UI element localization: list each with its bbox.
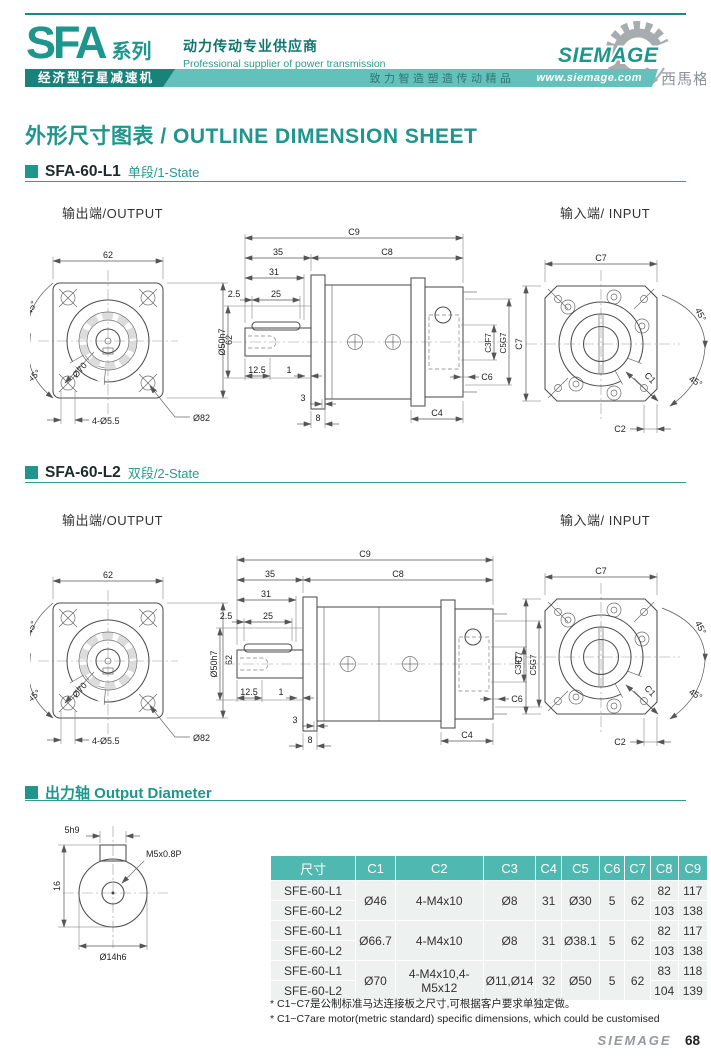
dim-3: 3 xyxy=(292,715,297,725)
cell-model: SFE-60-L2 xyxy=(271,901,356,921)
dim-c9: C9 xyxy=(359,549,371,559)
s2-input-flange-drawing: C7 C7 45° 45° C1 C2 xyxy=(500,545,711,780)
cell-model: SFE-60-L2 xyxy=(271,941,356,961)
col-c6: C6 xyxy=(599,856,624,881)
slogan-cn: 动力传动专业供应商 xyxy=(183,36,386,56)
section-bullet xyxy=(25,165,38,178)
cell-c8: 82 xyxy=(650,921,678,941)
cell-c5: Ø50 xyxy=(561,961,599,1001)
cell-c9: 117 xyxy=(678,921,708,941)
section-2-stage: 双段/2-State xyxy=(128,463,200,482)
dim-3: 3 xyxy=(300,393,305,403)
series-suffix: 系列 xyxy=(112,35,152,64)
dim-2-5: 2.5 xyxy=(220,611,233,621)
table-notes: * C1~C7是公制标准马达连接板之尺寸,可根据客户要求单独定做。 * C1~C… xyxy=(270,997,660,1027)
cell-c6: 5 xyxy=(599,961,624,1001)
col-c1: C1 xyxy=(356,856,396,881)
dim-angle: 45° xyxy=(693,306,708,323)
cell-c9: 138 xyxy=(678,901,708,921)
dim-35: 35 xyxy=(273,247,283,257)
top-rule xyxy=(25,13,686,15)
datasheet-page: SFA 系列 动力传动专业供应商 Professional supplier o… xyxy=(0,0,711,1060)
dim-1: 1 xyxy=(286,365,291,375)
banner-product: 经济型行星减速机 xyxy=(25,69,175,87)
dim-c4: C4 xyxy=(431,408,443,418)
dim-c1: C1 xyxy=(643,370,658,385)
cell-c2: 4-M4x10 xyxy=(395,881,483,921)
flange-geometry xyxy=(526,583,680,735)
dim-c6: C6 xyxy=(481,372,493,382)
section-2-rule xyxy=(25,482,686,483)
table-row: SFE-60-L1 Ø66.7 4-M4x10 Ø8 31 Ø38.1 5 62… xyxy=(271,921,708,941)
dim-c7: C7 xyxy=(595,566,607,576)
dim-key: 5h9 xyxy=(64,825,79,835)
cell-c9: 139 xyxy=(678,981,708,1001)
section-bullet xyxy=(25,466,38,479)
section-bullet xyxy=(25,786,38,799)
cell-c2: 4-M4x10 xyxy=(395,921,483,961)
flange-geometry xyxy=(38,590,178,736)
cell-model: SFE-60-L1 xyxy=(271,961,356,981)
dimension-table: 尺寸 C1 C2 C3 C4 C5 C6 C7 C8 C9 SFE-60-L1 … xyxy=(270,855,708,1001)
cell-c3: Ø8 xyxy=(483,881,536,921)
cell-c7: 62 xyxy=(625,881,650,921)
dim-31: 31 xyxy=(261,589,271,599)
dim-angle: 45° xyxy=(687,374,704,390)
cell-c1: Ø70 xyxy=(356,961,396,1001)
flange-geometry xyxy=(526,270,680,422)
cell-c1: Ø66.7 xyxy=(356,921,396,961)
cell-c8: 103 xyxy=(650,941,678,961)
dim-d50h7: Ø50h7 xyxy=(217,328,227,355)
table-row: SFE-60-L1 Ø46 4-M4x10 Ø8 31 Ø30 5 62 82 … xyxy=(271,881,708,901)
footer-brand: SIEMAGE xyxy=(598,1033,672,1048)
header-banner: 致力智造塑造传动精品 www.siemage.com 经济型行星减速机 xyxy=(25,69,658,87)
cell-c8: 83 xyxy=(650,961,678,981)
dim-c8: C8 xyxy=(381,247,393,257)
cell-c5: Ø30 xyxy=(561,881,599,921)
col-c8: C8 xyxy=(650,856,678,881)
page-footer: SIEMAGE 68 xyxy=(420,1032,700,1050)
dim-thread: M5x0.8P xyxy=(146,849,182,859)
dim-c1: C1 xyxy=(643,683,658,698)
dim-c4: C4 xyxy=(461,730,473,740)
dim-holes: 4-Ø5.5 xyxy=(92,736,120,746)
dim-25: 25 xyxy=(263,611,273,621)
dim-16: 16 xyxy=(52,881,62,891)
cell-c3: Ø8 xyxy=(483,921,536,961)
logo-wordmark: SIEMAGE xyxy=(558,44,659,67)
cell-c8: 103 xyxy=(650,901,678,921)
col-c3: C3 xyxy=(483,856,536,881)
cell-c5: Ø38.1 xyxy=(561,921,599,961)
section-1-header: SFA-60-L1 单段/1-State xyxy=(25,162,199,181)
dim-width: 62 xyxy=(103,570,113,580)
flange-geometry xyxy=(38,270,178,416)
dim-d50h7: Ø50h7 xyxy=(210,650,219,677)
dim-c9: C9 xyxy=(348,227,360,237)
section-2-header: SFA-60-L2 双段/2-State xyxy=(25,463,199,482)
cell-c4: 31 xyxy=(536,881,561,921)
dim-d82: Ø82 xyxy=(193,733,210,743)
section-3-rule xyxy=(25,800,686,801)
dim-angle: 45° xyxy=(687,687,704,703)
col-c9: C9 xyxy=(678,856,708,881)
note-cn: * C1~C7是公制标准马达连接板之尺寸,可根据客户要求单独定做。 xyxy=(270,997,660,1012)
dim-d82: Ø82 xyxy=(193,413,210,423)
dim-holes: 4-Ø5.5 xyxy=(92,416,120,426)
dim-angle: 45° xyxy=(30,367,43,384)
section-1-rule xyxy=(25,181,686,182)
page-title: 外形尺寸图表 / OUTLINE DIMENSION SHEET xyxy=(25,120,477,150)
cell-c7: 62 xyxy=(625,921,650,961)
company-slogan: 动力传动专业供应商 Professional supplier of power… xyxy=(183,36,386,70)
input-label-1: 输入端/ INPUT xyxy=(560,203,650,222)
cell-c9: 138 xyxy=(678,941,708,961)
dim-c7: C7 xyxy=(514,338,524,350)
section-1-stage: 单段/1-State xyxy=(128,162,200,181)
cell-c3: Ø11,Ø14 xyxy=(483,961,536,1001)
input-label-2: 输入端/ INPUT xyxy=(560,510,650,529)
series-logo: SFA 系列 xyxy=(26,20,152,65)
dim-c3f7: C3F7 xyxy=(484,333,493,353)
dim-angle: 45° xyxy=(30,299,39,316)
table-header-row: 尺寸 C1 C2 C3 C4 C5 C6 C7 C8 C9 xyxy=(271,856,708,881)
dim-1: 1 xyxy=(278,687,283,697)
banner-url: www.siemage.com xyxy=(536,72,642,84)
dim-31: 31 xyxy=(269,267,279,277)
dim-12-5: 12.5 xyxy=(240,687,258,697)
logo-cn: 西馬格 xyxy=(661,71,706,88)
cell-model: SFE-60-L1 xyxy=(271,881,356,901)
cell-c2: 4-M4x10,4-M5x12 xyxy=(395,961,483,1001)
dim-angle: 45° xyxy=(30,687,43,704)
dim-c2: C2 xyxy=(614,424,626,434)
dim-c7: C7 xyxy=(595,253,607,263)
s1-input-flange-drawing: C7 C7 45° 45° C1 C2 xyxy=(500,232,711,467)
dim-angle: 45° xyxy=(30,619,39,636)
col-size: 尺寸 xyxy=(271,856,356,881)
cell-c6: 5 xyxy=(599,881,624,921)
dim-diameter: Ø14h6 xyxy=(99,952,126,962)
cell-c9: 117 xyxy=(678,881,708,901)
dim-2-5: 2.5 xyxy=(228,289,241,299)
dim-c8: C8 xyxy=(392,569,404,579)
table-row: SFE-60-L1 Ø70 4-M4x10,4-M5x12 Ø11,Ø14 32… xyxy=(271,961,708,981)
series-name: SFA xyxy=(26,20,105,65)
note-en: * C1~C7are motor(metric standard) specif… xyxy=(270,1012,660,1027)
cell-model: SFE-60-L1 xyxy=(271,921,356,941)
cell-c9: 118 xyxy=(678,961,708,981)
dim-12-5: 12.5 xyxy=(248,365,266,375)
cell-c6: 5 xyxy=(599,921,624,961)
output-label-2: 输出端/OUTPUT xyxy=(62,510,163,529)
cell-c7: 62 xyxy=(625,961,650,1001)
col-c5: C5 xyxy=(561,856,599,881)
col-c2: C2 xyxy=(395,856,483,881)
page-number: 68 xyxy=(685,1033,700,1048)
section-1-model: SFA-60-L1 xyxy=(45,163,121,181)
dim-c2: C2 xyxy=(614,737,626,747)
cell-c8: 82 xyxy=(650,881,678,901)
dim-c7: C7 xyxy=(514,651,524,663)
s1-side-view-drawing: C9 35 C8 31 2.5 25 Ø50h7 12.5 1 3 8 C4 xyxy=(215,227,515,452)
s1-output-flange-drawing: 62 62 45° 45° Ø70 4-Ø5.5 Ø82 xyxy=(30,210,245,455)
dim-35: 35 xyxy=(265,569,275,579)
cell-c4: 32 xyxy=(536,961,561,1001)
dim-width: 62 xyxy=(103,250,113,260)
banner-slogan: 致力智造塑造传动精品 xyxy=(369,70,514,86)
col-c7: C7 xyxy=(625,856,650,881)
s2-side-view-drawing: C9 35 C8 31 2.5 25 Ø50h7 12.5 1 3 8 C4 xyxy=(210,549,550,774)
dim-25: 25 xyxy=(271,289,281,299)
dim-8: 8 xyxy=(307,735,312,745)
cell-c4: 31 xyxy=(536,921,561,961)
output-shaft-drawing: 5h9 16 M5x0.8P Ø14h6 xyxy=(28,808,268,1008)
dim-8: 8 xyxy=(315,413,320,423)
cell-c1: Ø46 xyxy=(356,881,396,921)
dim-angle: 45° xyxy=(693,619,708,636)
section-2-model: SFA-60-L2 xyxy=(45,464,121,482)
col-c4: C4 xyxy=(536,856,561,881)
